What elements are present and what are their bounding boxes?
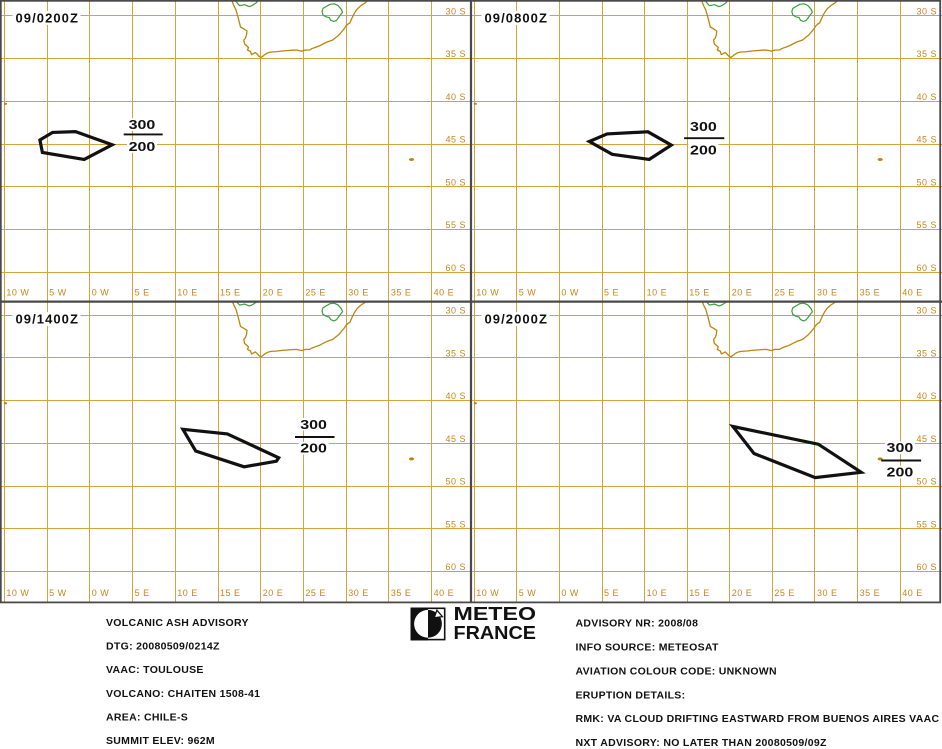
- svg-text:0 W: 0 W: [92, 288, 110, 298]
- svg-text:09/1400Z: 09/1400Z: [16, 312, 79, 327]
- svg-text:5 W: 5 W: [49, 288, 67, 298]
- svg-text:RMK: VA CLOUD DRIFTING EASTWAR: RMK: VA CLOUD DRIFTING EASTWARD FROM BUE…: [576, 713, 940, 725]
- svg-text:METEO: METEO: [454, 603, 537, 624]
- svg-text:5 E: 5 E: [604, 588, 619, 598]
- svg-text:35 S: 35 S: [445, 348, 466, 358]
- svg-text:20 E: 20 E: [263, 288, 284, 298]
- svg-text:25 E: 25 E: [305, 288, 326, 298]
- svg-text:AREA: CHILE-S: AREA: CHILE-S: [106, 711, 188, 723]
- svg-text:VOLCANO: CHAITEN 1508-41: VOLCANO: CHAITEN 1508-41: [106, 688, 260, 700]
- svg-text:60 S: 60 S: [916, 562, 937, 572]
- svg-text:25 E: 25 E: [774, 588, 795, 598]
- svg-text:5 E: 5 E: [604, 288, 619, 298]
- svg-text:35 S: 35 S: [916, 49, 937, 59]
- svg-text:FRANCE: FRANCE: [454, 622, 537, 643]
- svg-text:30 S: 30 S: [916, 306, 937, 316]
- svg-text:50 S: 50 S: [916, 477, 937, 487]
- svg-text:10 E: 10 E: [647, 288, 668, 298]
- svg-text:40 S: 40 S: [916, 92, 937, 102]
- svg-text:ADVISORY NR: 2008/08: ADVISORY NR: 2008/08: [576, 618, 699, 630]
- svg-text:10 E: 10 E: [647, 588, 668, 598]
- svg-text:200: 200: [887, 466, 914, 480]
- svg-text:5 E: 5 E: [135, 288, 150, 298]
- svg-text:60 S: 60 S: [445, 562, 466, 572]
- svg-text:40 E: 40 E: [902, 288, 923, 298]
- svg-text:15 E: 15 E: [689, 588, 710, 598]
- svg-text:300: 300: [300, 418, 327, 432]
- svg-text:200: 200: [129, 140, 156, 154]
- svg-text:10 E: 10 E: [177, 588, 198, 598]
- svg-text:5 W: 5 W: [519, 288, 537, 298]
- svg-text:25 E: 25 E: [305, 588, 326, 598]
- svg-text:30 E: 30 E: [348, 588, 369, 598]
- svg-text:40 E: 40 E: [434, 288, 455, 298]
- svg-text:50 S: 50 S: [445, 177, 466, 187]
- svg-text:25 E: 25 E: [774, 288, 795, 298]
- svg-text:10 W: 10 W: [6, 588, 29, 598]
- svg-text:0 W: 0 W: [561, 288, 579, 298]
- svg-text:55 S: 55 S: [445, 220, 466, 230]
- svg-text:09/2000Z: 09/2000Z: [485, 312, 548, 327]
- svg-text:0 W: 0 W: [92, 588, 110, 598]
- svg-text:55 S: 55 S: [916, 220, 937, 230]
- svg-text:40 E: 40 E: [902, 588, 923, 598]
- svg-text:35 S: 35 S: [445, 49, 466, 59]
- svg-text:40 E: 40 E: [434, 588, 455, 598]
- svg-text:45 S: 45 S: [916, 434, 937, 444]
- svg-text:INFO SOURCE: METEOSAT: INFO SOURCE: METEOSAT: [576, 642, 719, 654]
- svg-text:50 S: 50 S: [445, 477, 466, 487]
- svg-text:ERUPTION DETAILS:: ERUPTION DETAILS:: [576, 689, 686, 701]
- svg-text:15 E: 15 E: [220, 288, 241, 298]
- svg-text:10 W: 10 W: [476, 588, 499, 598]
- svg-text:300: 300: [690, 120, 717, 134]
- svg-text:20 E: 20 E: [263, 588, 284, 598]
- svg-text:0 W: 0 W: [561, 588, 579, 598]
- svg-text:60 S: 60 S: [916, 263, 937, 273]
- svg-text:20 E: 20 E: [732, 288, 753, 298]
- svg-text:35 E: 35 E: [391, 588, 412, 598]
- svg-text:55 S: 55 S: [445, 520, 466, 530]
- svg-text:SUMMIT ELEV: 962M: SUMMIT ELEV: 962M: [106, 735, 215, 747]
- svg-text:15 E: 15 E: [689, 288, 710, 298]
- svg-text:45 S: 45 S: [916, 135, 937, 145]
- svg-text:50 S: 50 S: [916, 177, 937, 187]
- svg-text:10 W: 10 W: [476, 288, 499, 298]
- svg-text:30 E: 30 E: [817, 588, 838, 598]
- svg-text:10 E: 10 E: [177, 288, 198, 298]
- svg-text:35 E: 35 E: [860, 588, 881, 598]
- svg-text:30 E: 30 E: [348, 288, 369, 298]
- svg-text:55 S: 55 S: [916, 520, 937, 530]
- svg-text:35 S: 35 S: [916, 348, 937, 358]
- svg-text:09/0200Z: 09/0200Z: [16, 10, 79, 25]
- svg-text:40 S: 40 S: [445, 391, 466, 401]
- svg-text:60 S: 60 S: [445, 263, 466, 273]
- svg-text:VOLCANIC ASH ADVISORY: VOLCANIC ASH ADVISORY: [106, 617, 249, 629]
- svg-text:40 S: 40 S: [916, 391, 937, 401]
- svg-text:30 S: 30 S: [916, 6, 937, 16]
- svg-text:AVIATION COLOUR CODE: UNKNOWN: AVIATION COLOUR CODE: UNKNOWN: [576, 665, 777, 677]
- svg-text:45 S: 45 S: [445, 434, 466, 444]
- svg-text:VAAC: TOULOUSE: VAAC: TOULOUSE: [106, 664, 204, 676]
- svg-text:35 E: 35 E: [391, 288, 412, 298]
- svg-text:15 E: 15 E: [220, 588, 241, 598]
- svg-text:30 E: 30 E: [817, 288, 838, 298]
- svg-text:35 E: 35 E: [860, 288, 881, 298]
- svg-text:300: 300: [129, 118, 156, 132]
- svg-text:5 E: 5 E: [135, 588, 150, 598]
- svg-text:NXT ADVISORY: NO LATER THAN 20: NXT ADVISORY: NO LATER THAN 20080509/09Z: [576, 737, 828, 749]
- svg-text:30 S: 30 S: [445, 6, 466, 16]
- svg-text:5 W: 5 W: [519, 588, 537, 598]
- svg-text:30 S: 30 S: [445, 306, 466, 316]
- svg-text:09/0800Z: 09/0800Z: [485, 10, 548, 25]
- svg-text:10 W: 10 W: [6, 288, 29, 298]
- svg-text:5 W: 5 W: [49, 588, 67, 598]
- svg-text:300: 300: [887, 441, 914, 455]
- svg-text:DTG: 20080509/0214Z: DTG: 20080509/0214Z: [106, 641, 220, 653]
- svg-text:40 S: 40 S: [445, 92, 466, 102]
- svg-text:200: 200: [300, 442, 327, 456]
- svg-text:200: 200: [690, 144, 717, 158]
- svg-text:45 S: 45 S: [445, 135, 466, 145]
- svg-text:20 E: 20 E: [732, 588, 753, 598]
